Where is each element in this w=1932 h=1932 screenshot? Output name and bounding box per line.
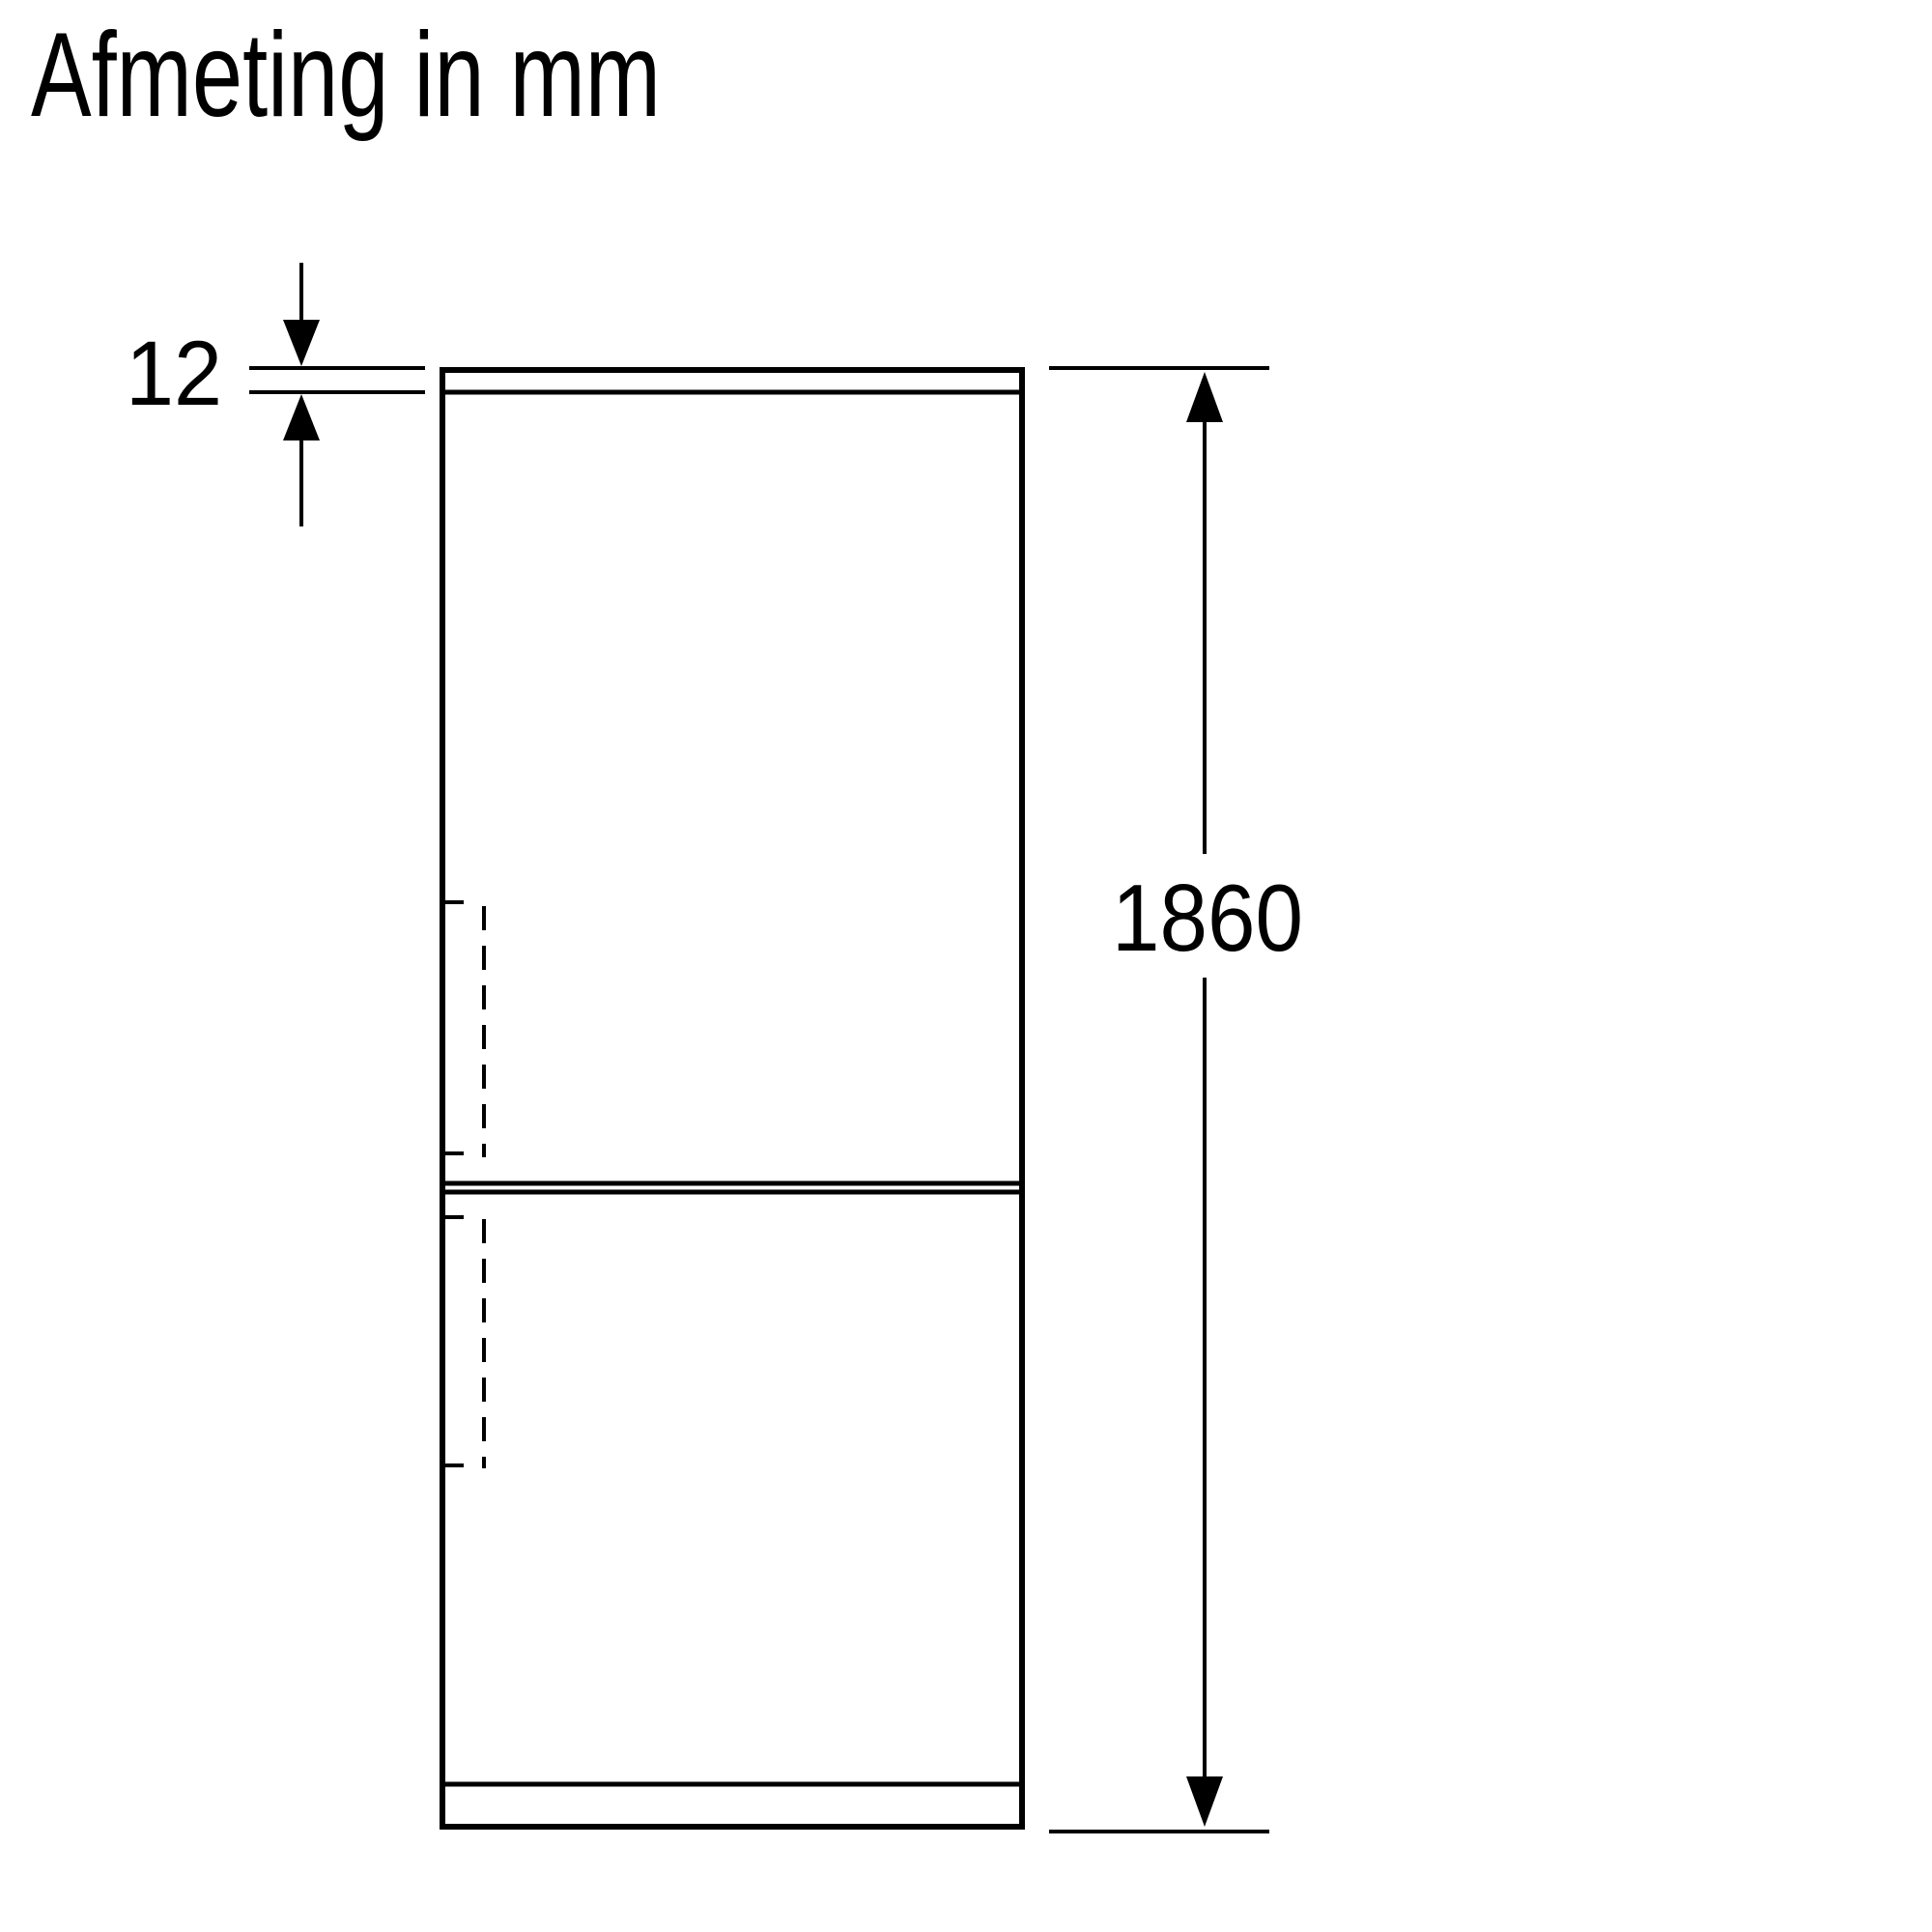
dim-12-arrow-down-icon — [283, 320, 320, 366]
dim-1860-arrow-down-icon — [1186, 1776, 1223, 1827]
dim-1860-label: 1860 — [1112, 865, 1303, 971]
page-title: Afmeting in mm — [31, 9, 661, 142]
fridge-cabinet-outline — [442, 370, 1022, 1827]
dimension-diagram-canvas: Afmeting in mm — [0, 0, 1932, 1932]
dim-12-arrow-up-icon — [283, 394, 320, 440]
dim-1860-arrow-up-icon — [1186, 372, 1223, 422]
dim-12-label: 12 — [126, 323, 222, 425]
dim-12-group: 12 — [126, 263, 425, 526]
dim-1860-group: 1860 — [1049, 368, 1303, 1832]
diagram-page: Afmeting in mm — [0, 0, 1932, 1932]
fridge-outline-group — [440, 370, 1022, 1827]
